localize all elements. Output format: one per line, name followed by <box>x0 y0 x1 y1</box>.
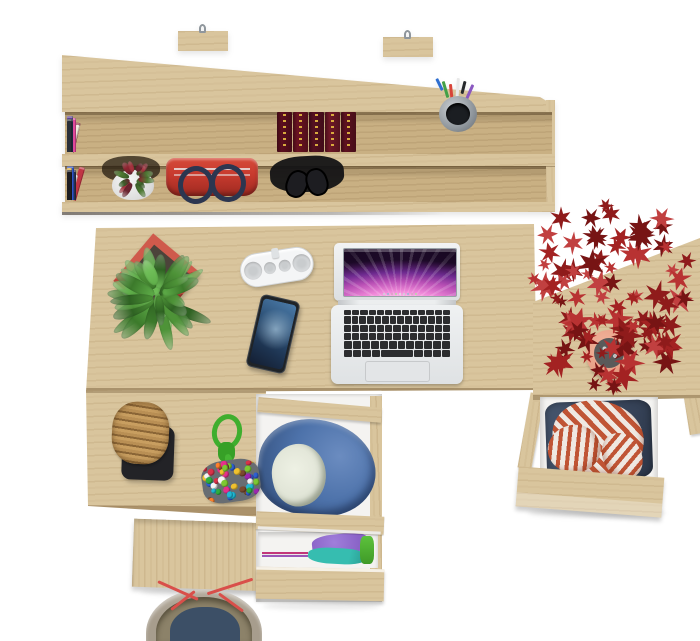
maple-leaf <box>537 240 563 266</box>
key <box>413 316 420 323</box>
small-plant <box>133 170 135 172</box>
wall-shelf <box>62 30 555 212</box>
keyboard-row <box>344 325 450 332</box>
headphones <box>268 154 348 202</box>
second-drawer <box>258 532 378 568</box>
key <box>385 310 392 315</box>
key <box>369 333 376 340</box>
dock-icon <box>411 293 413 295</box>
dock-icon <box>395 293 397 295</box>
laptop <box>331 243 463 384</box>
keyboard <box>344 310 450 357</box>
key <box>410 310 417 315</box>
cup-opening <box>446 103 470 125</box>
key <box>414 350 422 357</box>
bead <box>253 488 260 495</box>
key <box>352 325 359 332</box>
key <box>377 333 384 340</box>
key <box>426 325 433 332</box>
keyboard-row <box>344 350 450 357</box>
key <box>435 310 442 315</box>
bead <box>215 488 222 495</box>
key <box>402 310 409 315</box>
key <box>435 333 442 340</box>
key <box>372 350 380 357</box>
key <box>393 325 400 332</box>
speaker-clip <box>271 248 279 259</box>
key <box>389 341 397 348</box>
key <box>375 316 382 323</box>
keyboard-row <box>344 310 450 315</box>
red-foliage <box>520 200 700 405</box>
floor-shadow <box>262 602 380 610</box>
key <box>424 341 432 348</box>
key <box>393 333 400 340</box>
key <box>418 333 425 340</box>
leather-book-spine <box>277 112 292 152</box>
leather-book-set <box>277 112 356 152</box>
key <box>402 333 409 340</box>
key <box>443 310 450 315</box>
wall-hook-icon <box>199 24 206 33</box>
key <box>360 333 367 340</box>
key <box>435 325 442 332</box>
red-maple-plant <box>520 200 700 405</box>
leather-book-spine <box>325 112 340 152</box>
dock-icon <box>391 293 393 295</box>
key <box>433 341 441 348</box>
key <box>371 341 379 348</box>
key <box>415 341 423 348</box>
bead <box>207 468 215 476</box>
bead <box>246 460 252 466</box>
laptop-screen <box>343 248 457 297</box>
key <box>390 316 397 323</box>
key <box>424 350 432 357</box>
book-spine <box>67 170 72 200</box>
shelf-flower-pot <box>106 154 160 202</box>
bead <box>244 465 252 473</box>
key <box>360 310 367 315</box>
key <box>418 325 425 332</box>
key <box>443 333 450 340</box>
dock-icon <box>403 293 405 295</box>
maple-leaf <box>597 201 624 228</box>
dock-icon <box>387 293 389 295</box>
key <box>420 316 427 323</box>
bead <box>231 483 238 490</box>
tote-bag <box>146 583 264 641</box>
key <box>362 350 370 357</box>
key <box>344 325 351 332</box>
folded-clothes-stack <box>262 550 308 559</box>
pen <box>460 81 466 94</box>
key <box>362 341 370 348</box>
key <box>380 341 388 348</box>
key <box>344 341 352 348</box>
dock-icon <box>407 293 409 295</box>
wall-hook-icon <box>404 30 411 39</box>
key <box>367 316 374 323</box>
green-potted-plant <box>98 226 216 340</box>
leather-book-spine <box>293 112 308 152</box>
key <box>398 341 406 348</box>
key <box>397 316 404 323</box>
red-handbag <box>166 156 260 204</box>
key <box>344 350 352 357</box>
maple-leaf <box>579 350 593 364</box>
key <box>382 316 389 323</box>
key <box>369 325 376 332</box>
maple-leaf <box>665 265 695 295</box>
key <box>442 350 450 357</box>
maple-leaf <box>622 286 644 308</box>
maple-leaf <box>558 228 588 258</box>
trackpad <box>365 361 430 382</box>
drawer-front-panel <box>256 567 385 602</box>
key <box>428 316 435 323</box>
shelf-front-edge <box>62 202 555 212</box>
key <box>385 333 392 340</box>
pencil-cup <box>434 76 482 136</box>
key <box>381 350 414 357</box>
key <box>443 325 450 332</box>
bead-pouch <box>198 412 264 502</box>
key <box>344 316 351 323</box>
keyboard-row <box>344 341 450 348</box>
dock-icon <box>383 293 385 295</box>
key <box>426 333 433 340</box>
key <box>406 341 414 348</box>
laptop-lid <box>334 243 460 301</box>
key <box>418 310 425 315</box>
key <box>353 350 361 357</box>
keyboard-row <box>344 333 450 340</box>
key <box>402 325 409 332</box>
bead <box>253 478 260 485</box>
green-folded-shirt <box>360 536 374 564</box>
beaded-pouch <box>199 456 262 506</box>
key <box>443 316 450 323</box>
key <box>433 350 441 357</box>
key <box>385 325 392 332</box>
shelf-mount-tab <box>383 37 433 57</box>
key <box>410 333 417 340</box>
dock-icon <box>399 293 401 295</box>
key <box>377 310 384 315</box>
wicker-stool <box>112 402 176 482</box>
key <box>410 325 417 332</box>
maple-leaf <box>602 259 619 276</box>
keyboard-row <box>344 316 450 323</box>
desk-scene-photo <box>0 0 700 641</box>
maple-leaf <box>565 287 588 310</box>
laptop-keyboard-deck <box>331 305 463 384</box>
dock-icon <box>415 293 417 295</box>
key <box>352 316 359 323</box>
maple-leaf <box>581 208 602 229</box>
key <box>353 341 361 348</box>
key <box>442 341 450 348</box>
green-leaves <box>157 275 159 277</box>
maple-leaf <box>585 375 604 394</box>
shelf-mount-tab <box>178 31 228 51</box>
leather-book-spine <box>341 112 356 152</box>
key <box>405 316 412 323</box>
key <box>344 333 351 340</box>
desk-drawer-unit <box>254 392 382 602</box>
open-drawer-clothes <box>258 418 378 518</box>
dock-icons <box>383 293 417 295</box>
key <box>426 310 433 315</box>
key <box>359 316 366 323</box>
key <box>369 310 376 315</box>
maple-leaf <box>536 223 559 246</box>
book-spine <box>67 119 72 152</box>
key <box>393 310 400 315</box>
key <box>436 316 443 323</box>
wicker-seat <box>110 401 170 466</box>
key <box>377 325 384 332</box>
key <box>344 310 351 315</box>
leather-book-spine <box>309 112 324 152</box>
key <box>352 310 359 315</box>
key <box>352 333 359 340</box>
key <box>360 325 367 332</box>
